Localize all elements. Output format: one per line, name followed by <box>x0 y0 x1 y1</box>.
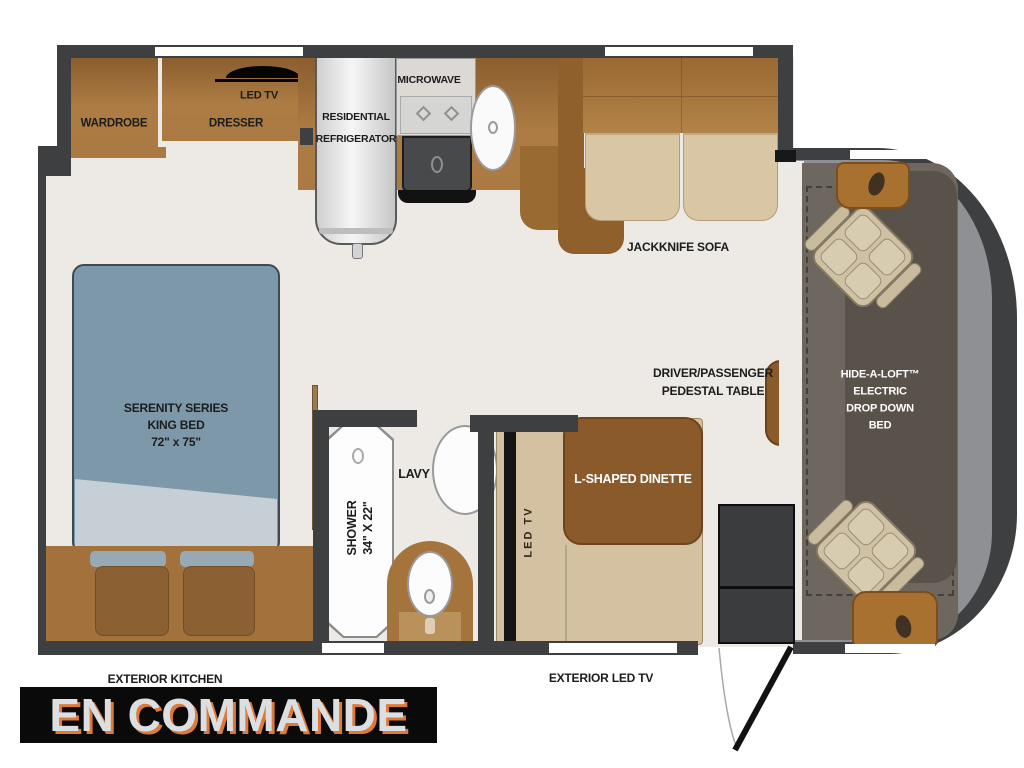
entry-door-icon <box>700 640 810 760</box>
dinette-bench-seam <box>565 545 567 643</box>
wardrobe-cabinet <box>70 57 158 147</box>
bedroom-led-tv-label: LED TV <box>240 91 278 102</box>
hide-a-loft-label-line2: ELECTRIC <box>853 387 906 398</box>
refrigerator-base-band <box>319 228 393 234</box>
shower-drain-icon <box>352 448 364 464</box>
slideout-cushion-left <box>95 566 169 636</box>
l-shaped-dinette-label: L-SHAPED DINETTE <box>574 473 692 486</box>
wall-bath-left <box>313 410 329 641</box>
shower-label-line1: SHOWER <box>346 500 359 555</box>
wall-left-slideout <box>38 176 46 645</box>
bed-pillow-right <box>180 551 254 567</box>
window-sofa-top <box>605 47 753 56</box>
toilet-seat-icon <box>424 589 435 604</box>
refrigerator <box>315 55 397 245</box>
pedestal-table-label-line1: DRIVER/PASSENGER <box>653 367 773 379</box>
steering-icon-bottom <box>893 613 913 639</box>
wardrobe-label: WARDROBE <box>81 118 148 130</box>
window-cab-bottom <box>845 644 935 653</box>
cooktop-panel <box>400 96 472 134</box>
shower-label-line2: 34" X 22" <box>362 501 375 554</box>
kitchen-counter-endcap <box>300 128 313 145</box>
dinette-led-tv-label: LED TV <box>524 506 535 557</box>
hide-a-loft-label-line4: BED <box>869 421 892 432</box>
refrigerator-label-line1: RESIDENTIAL <box>322 112 390 123</box>
oven-handle-icon <box>431 156 443 173</box>
entry-steps <box>718 504 795 644</box>
rv-floorplan-diagram: WARDROBE DRESSER LED TV RESIDENTIAL REFR… <box>0 0 1024 768</box>
exterior-led-tv-label: EXTERIOR LED TV <box>549 672 653 684</box>
sofa-back-seam-v <box>681 57 682 133</box>
wall-sofa-slideout-right <box>778 45 793 155</box>
wall-bath-right <box>478 415 494 645</box>
refrigerator-label-line2: REFRIGERATOR <box>316 134 397 145</box>
entry-door-panel <box>735 647 791 750</box>
kitchen-faucet-icon <box>488 121 498 134</box>
entry-steps-divider <box>720 586 793 589</box>
king-bed-label-line1: SERENITY SERIES <box>124 402 228 414</box>
entry-door-arc <box>719 648 737 748</box>
wall-left-notch <box>38 146 71 176</box>
sofa-seat-right <box>683 133 778 221</box>
bed-pillow-left <box>90 551 166 567</box>
lavy-label: LAVY <box>398 468 430 481</box>
dresser-label: DRESSER <box>209 118 263 130</box>
hide-a-loft-label-line3: DROP DOWN <box>846 404 914 415</box>
toilet-bowl <box>407 551 453 617</box>
window-bedroom-top <box>155 47 303 56</box>
dashboard-console-top <box>836 162 910 209</box>
steering-icon-top <box>865 170 887 198</box>
bed-sheet-fold <box>75 469 277 551</box>
window-bath-bottom <box>322 643 384 653</box>
status-banner: EN COMMANDE <box>20 687 437 743</box>
oven-base-cap <box>398 190 476 203</box>
wall-left-upper <box>57 45 71 155</box>
dinette-tv-bar <box>504 427 516 641</box>
bedroom-tv-base-icon <box>215 79 311 82</box>
sofa-seat-left <box>585 133 680 221</box>
king-bed-label-line2: KING BED <box>147 419 204 431</box>
slideout-cushion-right <box>183 566 255 636</box>
jackknife-sofa-label: JACKKNIFE SOFA <box>627 241 729 253</box>
toilet-flush-icon <box>425 618 435 634</box>
king-bed-label-line3: 72" x 75" <box>151 436 201 448</box>
wall-bath-top <box>313 410 417 427</box>
window-dinette-bottom <box>549 643 677 653</box>
exterior-kitchen-label: EXTERIOR KITCHEN <box>108 673 223 685</box>
hide-a-loft-label-line1: HIDE-A-LOFT™ <box>841 370 920 381</box>
pedestal-table-label-line2: PEDESTAL TABLE <box>662 385 765 397</box>
wardrobe-cabinet-step <box>70 147 166 158</box>
window-cab-top <box>850 150 938 159</box>
wall-sofa-slideout-cap <box>775 150 796 162</box>
microwave-label: MICROWAVE <box>397 75 460 86</box>
status-banner-text: EN COMMANDE <box>49 688 407 742</box>
dashboard-console-bottom <box>852 591 938 648</box>
refrigerator-handle <box>352 243 363 259</box>
